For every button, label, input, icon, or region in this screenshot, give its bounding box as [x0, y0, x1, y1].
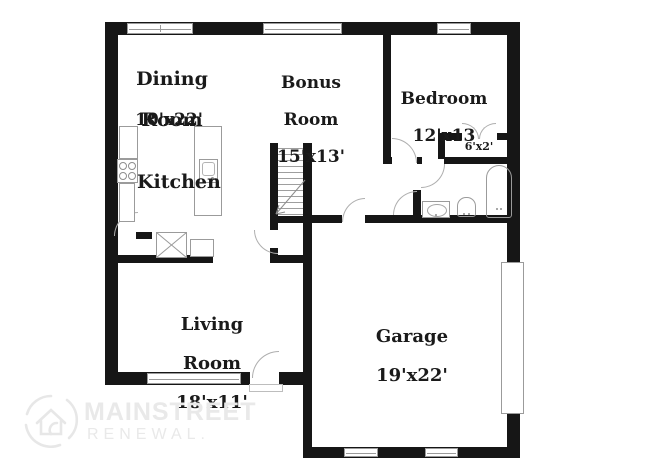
closet-dims: 6'x2' — [449, 141, 509, 153]
window-garage-2 — [425, 448, 458, 457]
mainstreet-renewal-logo-icon — [22, 392, 80, 450]
kitchen-counter-left — [119, 183, 135, 222]
washer-dryer-box — [156, 232, 187, 258]
wall-closet-top-right — [497, 133, 508, 140]
window-bedroom — [437, 23, 471, 34]
wall-laundry-stub — [136, 232, 152, 239]
window-pane-line — [346, 453, 376, 454]
wall-exterior-left — [105, 22, 118, 385]
hall-nook-door-arc — [393, 191, 417, 215]
toilet-base-dot — [468, 213, 470, 215]
bathtub — [486, 165, 512, 218]
room-label-garage: Garage 19'x22' — [362, 308, 462, 405]
window-dining — [127, 23, 193, 34]
room-label-bonus: Bonus Room 15'x13' — [264, 56, 358, 185]
wall-bonus-bedroom-divider — [383, 34, 391, 163]
understairs-closet-door-arc — [254, 230, 278, 254]
room-name-line: Room — [264, 111, 358, 129]
window-pane-line — [129, 29, 191, 30]
window-pane-line — [427, 453, 456, 454]
room-dims: 15'x13' — [264, 148, 358, 166]
room-name-line: Bedroom — [394, 90, 494, 108]
stove-burner-icon — [119, 172, 127, 180]
room-name-line: Bonus — [264, 74, 358, 92]
room-name-line: Dining — [120, 69, 224, 90]
window-garage-1 — [344, 448, 378, 457]
room-name-line: Garage — [362, 327, 462, 346]
window-pane-line — [265, 29, 340, 30]
room-label-kitchen: Kitchen — [137, 172, 199, 193]
watermark-sub: RENEWAL. — [87, 426, 210, 444]
floor-plan: Dining Room 10'x22' Bonus Room 15'x13' B… — [0, 0, 650, 473]
window-bonus — [263, 23, 342, 34]
vanity-sink — [427, 204, 447, 217]
laundry-counter — [190, 239, 214, 257]
tub-faucet-icon — [496, 208, 498, 210]
garage-entry-door-arc — [342, 198, 365, 222]
watermark-brand: MAINSTREET — [84, 398, 257, 427]
toilet — [457, 197, 476, 217]
stove-burner-icon — [128, 172, 136, 180]
stove-burner-icon — [128, 162, 136, 170]
window-pane-line — [439, 29, 469, 30]
toilet-base-dot — [463, 213, 465, 215]
room-dims: 19'x22' — [362, 366, 462, 385]
room-dims-dining: 10'x22' — [120, 111, 218, 129]
wall-understairs-bottom — [270, 255, 312, 263]
room-label-dining: Dining Room — [120, 48, 224, 151]
bathroom-door-arc — [421, 164, 445, 188]
faucet-icon — [435, 214, 437, 216]
stove-burner-icon — [119, 162, 127, 170]
tub-faucet-icon — [500, 208, 502, 210]
wall-garage-bottom — [303, 447, 520, 458]
garage-door — [501, 262, 524, 414]
wall-bedroom-door-jamb-left — [383, 157, 392, 164]
room-name-line: Living — [162, 315, 262, 334]
room-name-line: Room — [162, 354, 262, 373]
stove — [117, 159, 138, 183]
